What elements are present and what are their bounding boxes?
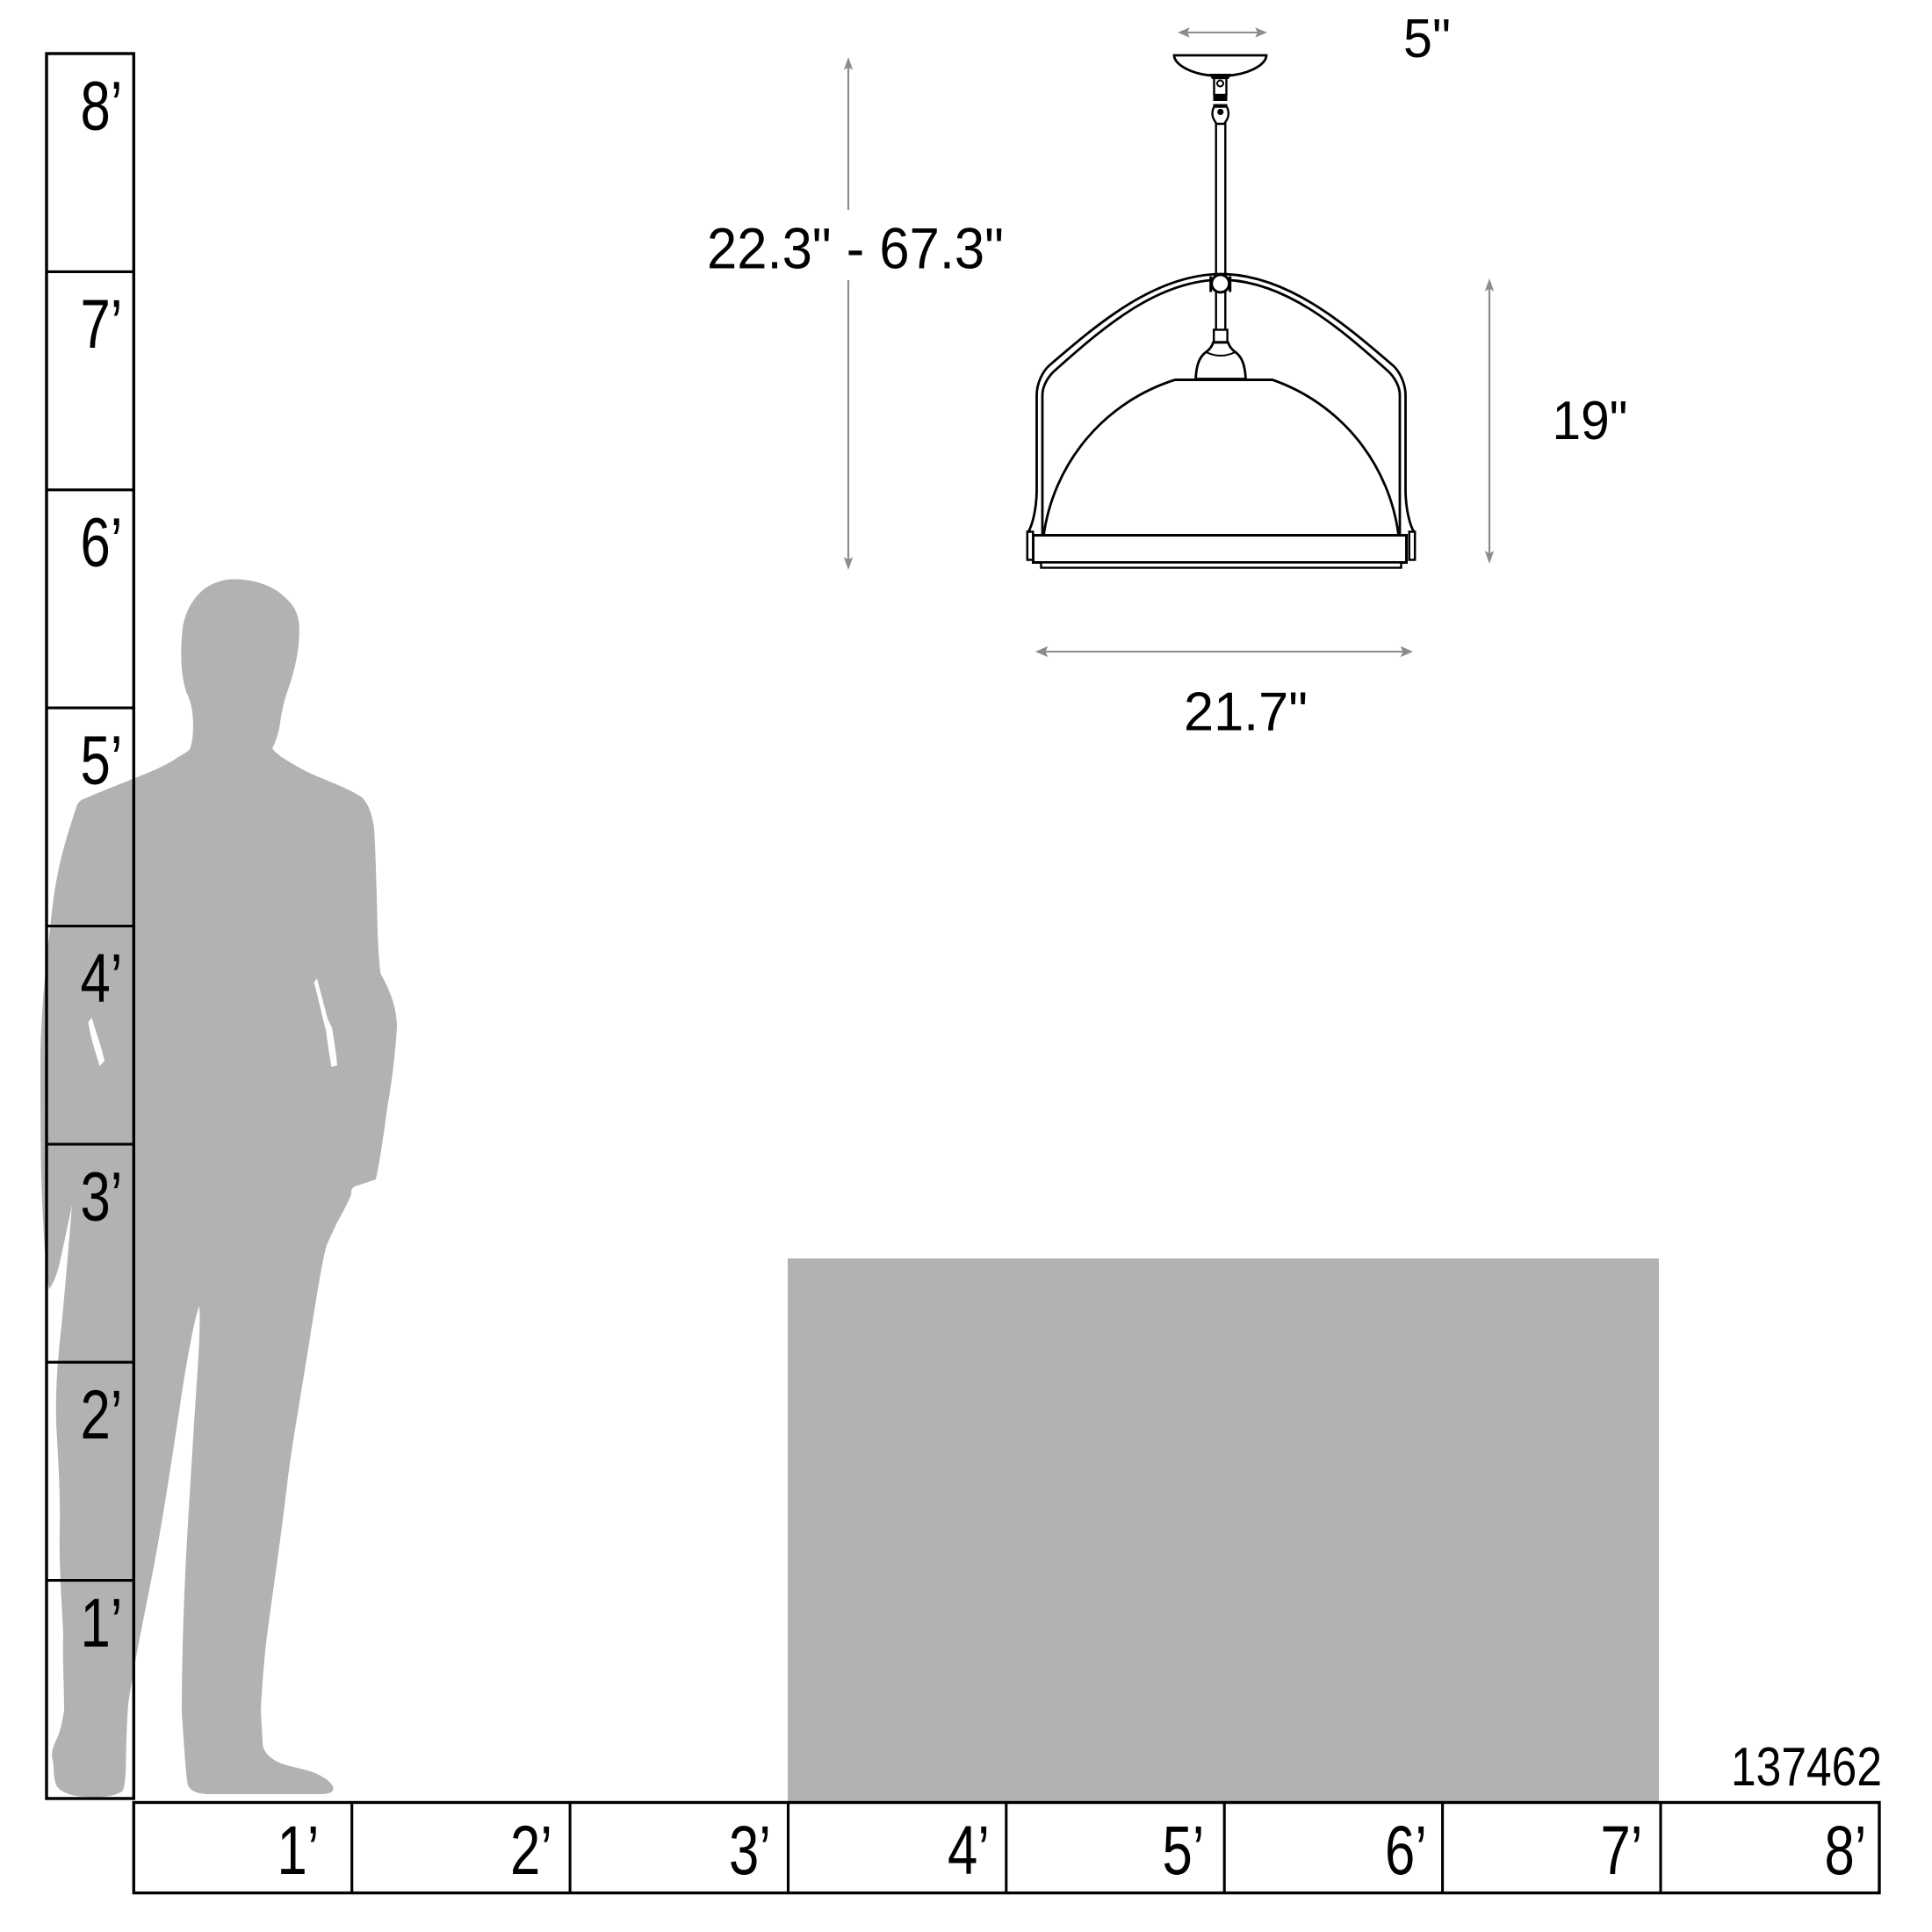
svg-text:3’: 3’ [81,1157,123,1235]
svg-text:3’: 3’ [729,1811,771,1889]
svg-text:5’: 5’ [1163,1811,1205,1889]
svg-text:19": 19" [1553,391,1628,451]
svg-text:4’: 4’ [81,939,123,1017]
svg-text:2’: 2’ [510,1811,552,1889]
svg-text:22.3" - 67.3": 22.3" - 67.3" [707,216,1004,281]
svg-text:137462: 137462 [1731,1737,1882,1798]
svg-text:8’: 8’ [81,67,123,145]
svg-text:7’: 7’ [81,285,123,363]
svg-text:8’: 8’ [1825,1811,1867,1889]
svg-text:5’: 5’ [81,721,123,799]
svg-text:1’: 1’ [278,1811,320,1889]
svg-text:21.7": 21.7" [1184,682,1308,743]
svg-text:5": 5" [1403,9,1451,69]
svg-text:7’: 7’ [1601,1811,1643,1889]
svg-text:2’: 2’ [81,1375,123,1453]
svg-text:4’: 4’ [948,1811,990,1889]
svg-text:1’: 1’ [81,1583,123,1662]
svg-text:6’: 6’ [81,502,123,580]
svg-text:6’: 6’ [1385,1811,1427,1889]
